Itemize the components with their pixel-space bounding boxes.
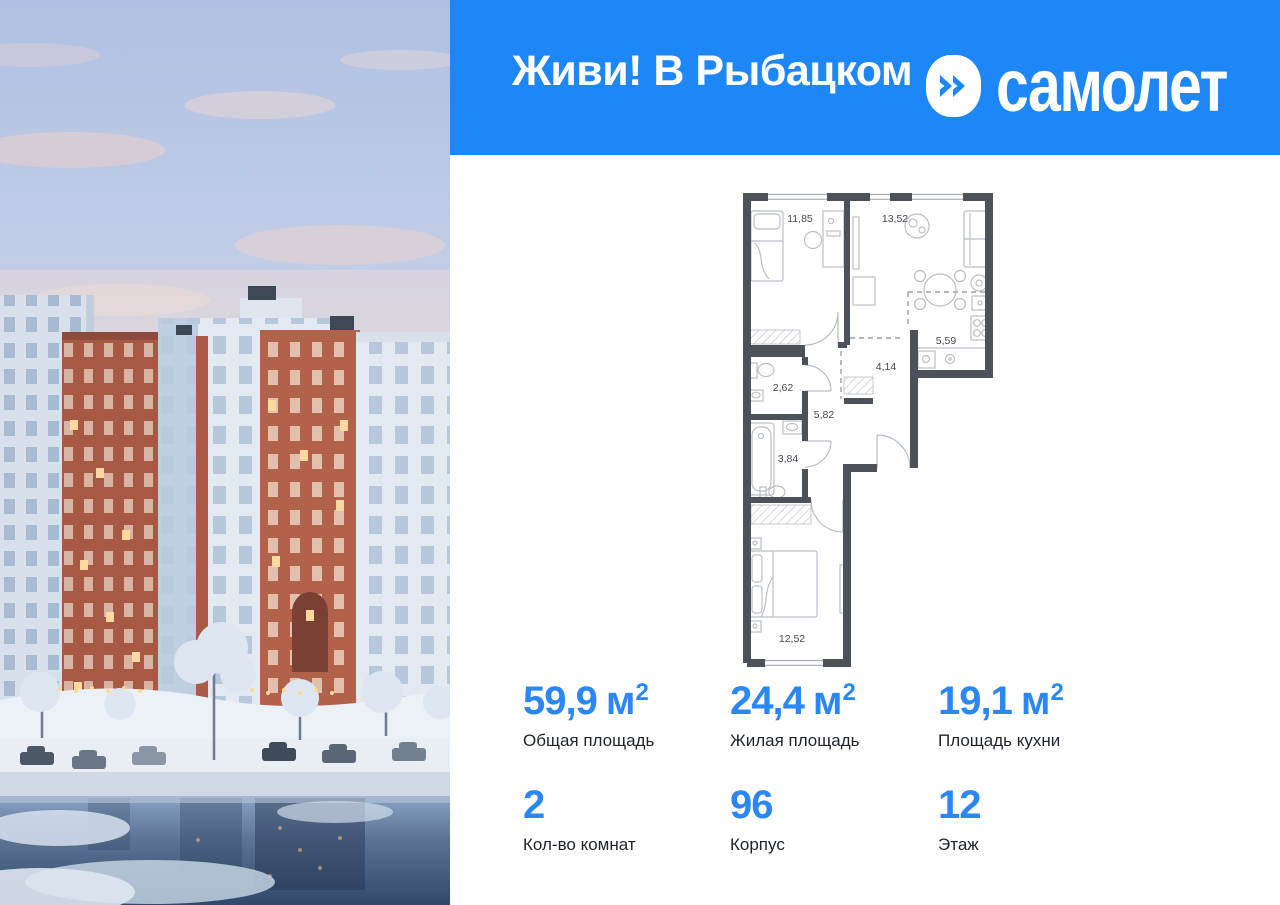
project-title: Живи! В Рыбацком (512, 47, 912, 96)
stat-building: 96 Корпус (730, 785, 935, 855)
stat-total-area: 59,9м2 Общая площадь (523, 681, 728, 751)
building-photo (0, 0, 450, 905)
stat-label: Этаж (938, 835, 1143, 855)
listing-card[interactable]: Живи! В Рыбацком самолет (0, 0, 1280, 905)
stat-value: 24,4м2 (730, 681, 935, 721)
floor-plan: 11,85 13,52 5,59 4,14 2,62 5,82 3,84 12,… (743, 193, 993, 667)
plan-background (743, 193, 993, 667)
samolet-logo: самолет (926, 52, 1227, 120)
room-label-bedroom-2: 12,52 (779, 633, 805, 645)
stat-value: 19,1м2 (938, 681, 1143, 721)
stat-label: Площадь кухни (938, 731, 1143, 751)
stat-value: 2 (523, 785, 728, 825)
room-label-bedroom-1: 11,85 (787, 213, 813, 225)
room-label-bathroom: 3,84 (778, 453, 799, 465)
room-label-wc: 2,62 (773, 382, 794, 394)
room-label-kitchen: 5,59 (936, 335, 957, 347)
stat-value: 96 (730, 785, 935, 825)
river (0, 796, 450, 905)
stat-kitchen-area: 19,1м2 Площадь кухни (938, 681, 1143, 751)
stat-living-area: 24,4м2 Жилая площадь (730, 681, 935, 751)
samolet-logo-text: самолет (996, 43, 1227, 129)
floor-plan-svg: 11,85 13,52 5,59 4,14 2,62 5,82 3,84 12,… (743, 193, 993, 667)
stat-value: 59,9м2 (523, 681, 728, 721)
stat-label: Кол-во комнат (523, 835, 728, 855)
room-label-hallway: 4,14 (876, 361, 897, 373)
stat-floor: 12 Этаж (938, 785, 1143, 855)
stat-rooms: 2 Кол-во комнат (523, 785, 728, 855)
stat-label: Общая площадь (523, 731, 728, 751)
stat-label: Жилая площадь (730, 731, 935, 751)
stat-value: 12 (938, 785, 1143, 825)
stat-label: Корпус (730, 835, 935, 855)
header: Живи! В Рыбацком самолет (450, 0, 1280, 155)
room-label-corridor: 5,82 (814, 409, 835, 421)
room-label-living-room: 13,52 (882, 213, 908, 225)
building-photo-svg (0, 0, 450, 905)
samolet-logo-icon (926, 55, 981, 117)
